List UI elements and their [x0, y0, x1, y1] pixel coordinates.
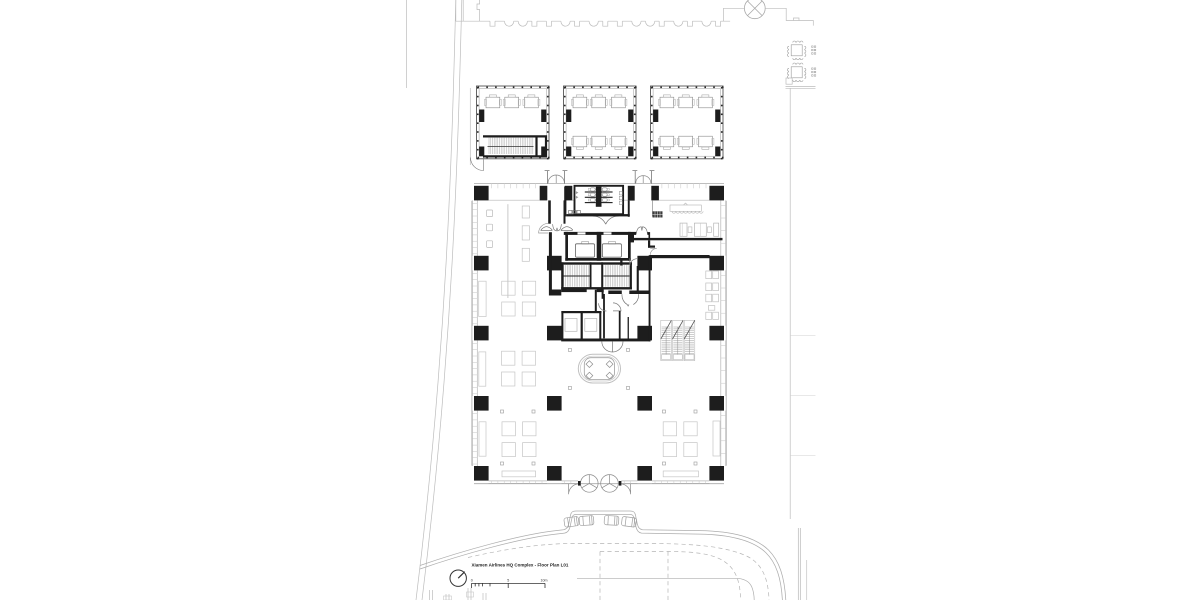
svg-text:0: 0	[471, 579, 473, 583]
svg-text:5: 5	[507, 579, 509, 583]
svg-text:Xiamen Airlines HQ Complex - F: Xiamen Airlines HQ Complex - Floor Plan …	[472, 562, 569, 567]
svg-text:10m: 10m	[541, 579, 548, 583]
